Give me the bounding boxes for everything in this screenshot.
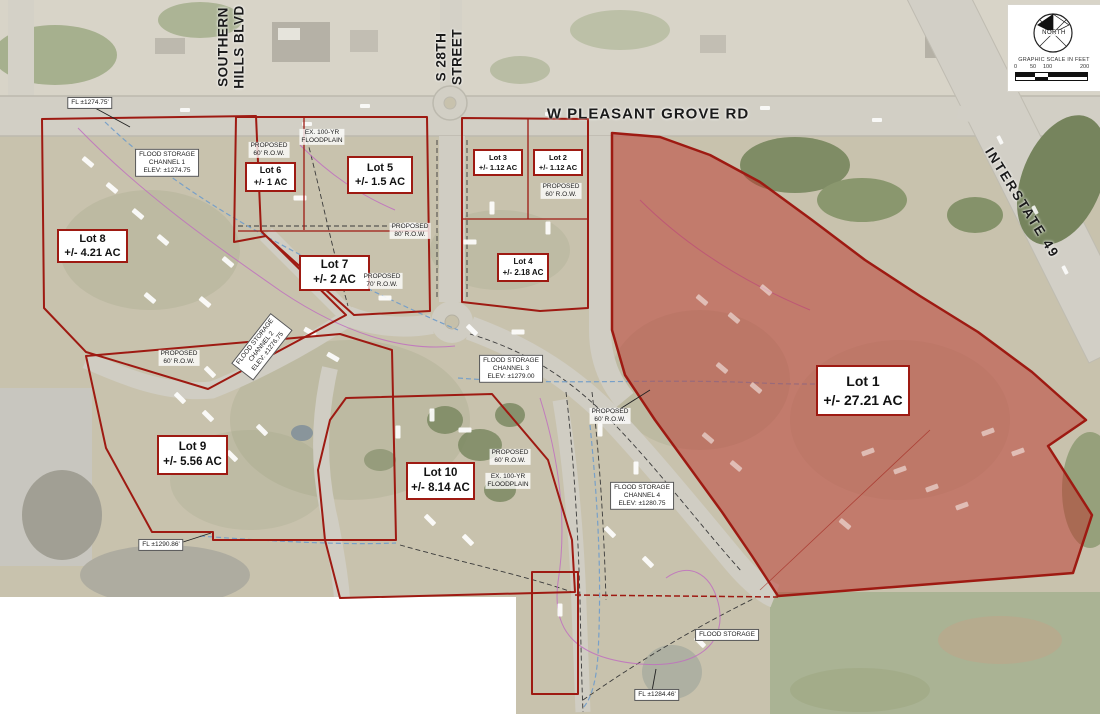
lot-name: Lot 7 bbox=[321, 258, 348, 273]
note-line: 70' R.O.W. bbox=[364, 281, 401, 289]
note-line: ELEV: ±1279.00 bbox=[483, 373, 539, 381]
note-line: FLOOD STORAGE bbox=[139, 151, 195, 159]
note-flood-storage: FLOOD STORAGE bbox=[695, 629, 759, 641]
note-proposed-60-row-mid: PROPOSED 60' R.O.W. bbox=[590, 408, 631, 424]
lot-name: Lot 6 bbox=[260, 165, 282, 177]
note-line: 60' R.O.W. bbox=[592, 416, 629, 424]
scale-segment bbox=[1035, 77, 1048, 81]
note-line: PROPOSED bbox=[392, 223, 429, 231]
lot-label-5: Lot 5 +/- 1.5 AC bbox=[347, 156, 413, 194]
lot-label-1: Lot 1 +/- 27.21 AC bbox=[816, 365, 910, 416]
street-label-southern-hills-blvd: SOUTHERN HILLS BLVD bbox=[215, 5, 246, 89]
legend-north-scale: NORTH GRAPHIC SCALE IN FEET 0 50 100 200 bbox=[1007, 4, 1100, 92]
note-line: FLOODPLAIN bbox=[487, 481, 528, 489]
note-flood-storage-channel-3: FLOOD STORAGE CHANNEL 3 ELEV: ±1279.00 bbox=[479, 355, 543, 383]
lot-acreage: +/- 27.21 AC bbox=[823, 391, 902, 409]
scale-bar bbox=[1015, 72, 1088, 81]
lot-name: Lot 3 bbox=[489, 153, 507, 163]
note-proposed-60-row-lot6: PROPOSED 60' R.O.W. bbox=[249, 142, 290, 158]
street-label-s-28th-street: S 28TH STREET bbox=[433, 29, 464, 85]
note-line: EX. 100-YR bbox=[301, 129, 342, 137]
street-line: HILLS BLVD bbox=[231, 5, 246, 89]
lot-name: Lot 4 bbox=[513, 257, 532, 267]
lot-label-6: Lot 6 +/- 1 AC bbox=[245, 162, 296, 192]
site-plan-map: SOUTHERN HILLS BLVD S 28TH STREET W PLEA… bbox=[0, 0, 1100, 714]
scale-title: GRAPHIC SCALE IN FEET bbox=[1008, 57, 1100, 63]
note-proposed-60-row-lot2: PROPOSED 60' R.O.W. bbox=[541, 183, 582, 199]
fl-elevation-label-1284: FL ±1284.46' bbox=[634, 689, 679, 701]
lot-acreage: +/- 2 AC bbox=[313, 273, 356, 288]
note-line: PROPOSED bbox=[543, 183, 580, 191]
note-ex-100yr-floodplain-lot10: EX. 100-YR FLOODPLAIN bbox=[485, 473, 530, 489]
lot-acreage: +/- 2.18 AC bbox=[503, 268, 544, 278]
note-ex-100yr-floodplain-top: EX. 100-YR FLOODPLAIN bbox=[299, 129, 344, 145]
note-line: EX. 100-YR bbox=[487, 473, 528, 481]
lot-acreage: +/- 1 AC bbox=[254, 177, 287, 189]
north-label: NORTH bbox=[1008, 30, 1100, 36]
street-line: STREET bbox=[449, 29, 464, 85]
note-line: CHANNEL 4 bbox=[614, 492, 670, 500]
lot-label-2: Lot 2 +/- 1.12 AC bbox=[533, 149, 583, 176]
lot-label-7: Lot 7 +/- 2 AC bbox=[299, 255, 370, 291]
note-line: 60' R.O.W. bbox=[161, 358, 198, 366]
lot-acreage: +/- 8.14 AC bbox=[411, 481, 470, 496]
note-line: 60' R.O.W. bbox=[492, 457, 529, 465]
note-line: 80' R.O.W. bbox=[392, 231, 429, 239]
scale-bar-row bbox=[1016, 77, 1087, 81]
note-line: 60' R.O.W. bbox=[251, 150, 288, 158]
note-line: ELEV: ±1274.75 bbox=[139, 167, 195, 175]
scale-segment bbox=[1048, 77, 1087, 81]
lot-label-10: Lot 10 +/- 8.14 AC bbox=[406, 462, 475, 500]
note-proposed-80-row: PROPOSED 80' R.O.W. bbox=[390, 223, 431, 239]
lot-acreage: +/- 5.56 AC bbox=[163, 455, 222, 470]
note-line: FLOOD STORAGE bbox=[614, 484, 670, 492]
note-line: PROPOSED bbox=[161, 350, 198, 358]
lot-label-9: Lot 9 +/- 5.56 AC bbox=[157, 435, 228, 475]
note-line: PROPOSED bbox=[492, 449, 529, 457]
lot-name: Lot 5 bbox=[367, 161, 393, 175]
note-proposed-70-row: PROPOSED 70' R.O.W. bbox=[362, 273, 403, 289]
note-line: 60' R.O.W. bbox=[543, 191, 580, 199]
lot-name: Lot 9 bbox=[179, 440, 206, 455]
scale-tick-50: 50 bbox=[1030, 64, 1036, 70]
lot-acreage: +/- 1.12 AC bbox=[539, 163, 577, 173]
street-line: S 28TH bbox=[433, 33, 448, 82]
scale-tick-200: 200 bbox=[1080, 64, 1089, 70]
note-line: PROPOSED bbox=[364, 273, 401, 281]
scale-tick-0: 0 bbox=[1014, 64, 1017, 70]
street-label-pleasant-grove-rd: W PLEASANT GROVE RD bbox=[547, 105, 749, 122]
scale-tick-100: 100 bbox=[1043, 64, 1052, 70]
fl-elevation-label-1290: FL ±1290.86' bbox=[138, 539, 183, 551]
lot-acreage: +/- 1.12 AC bbox=[479, 163, 517, 173]
note-flood-storage-channel-4: FLOOD STORAGE CHANNEL 4 ELEV: ±1280.75 bbox=[610, 482, 674, 510]
lot-label-8: Lot 8 +/- 4.21 AC bbox=[57, 229, 128, 263]
note-line: CHANNEL 1 bbox=[139, 159, 195, 167]
note-line: FLOOD STORAGE bbox=[483, 357, 539, 365]
note-proposed-60-row-lot10: PROPOSED 60' R.O.W. bbox=[490, 449, 531, 465]
note-line: PROPOSED bbox=[592, 408, 629, 416]
lot-name: Lot 1 bbox=[846, 372, 879, 390]
lot-acreage: +/- 4.21 AC bbox=[64, 246, 120, 260]
note-line: FLOODPLAIN bbox=[301, 137, 342, 145]
north-text: NORTH bbox=[1041, 30, 1067, 36]
lot-acreage: +/- 1.5 AC bbox=[355, 175, 405, 189]
note-line: FL ±1290.86' bbox=[142, 541, 179, 549]
scale-segment bbox=[1016, 77, 1035, 81]
note-line: PROPOSED bbox=[251, 142, 288, 150]
note-line: ELEV: ±1280.75 bbox=[614, 500, 670, 508]
note-line: FL ±1274.75' bbox=[71, 99, 108, 107]
note-proposed-60-row-lot9: PROPOSED 60' R.O.W. bbox=[159, 350, 200, 366]
note-line: FLOOD STORAGE bbox=[699, 631, 755, 639]
street-line: SOUTHERN bbox=[215, 7, 230, 87]
lot-name: Lot 8 bbox=[79, 232, 105, 246]
note-flood-storage-channel-1: FLOOD STORAGE CHANNEL 1 ELEV: ±1274.75 bbox=[135, 149, 199, 177]
lot-label-4: Lot 4 +/- 2.18 AC bbox=[497, 253, 549, 282]
lot-name: Lot 2 bbox=[549, 153, 567, 163]
lot-label-3: Lot 3 +/- 1.12 AC bbox=[473, 149, 523, 176]
lot-name: Lot 10 bbox=[424, 466, 458, 481]
fl-elevation-label-1274: FL ±1274.75' bbox=[67, 97, 112, 109]
note-line: CHANNEL 3 bbox=[483, 365, 539, 373]
note-line: FL ±1284.46' bbox=[638, 691, 675, 699]
